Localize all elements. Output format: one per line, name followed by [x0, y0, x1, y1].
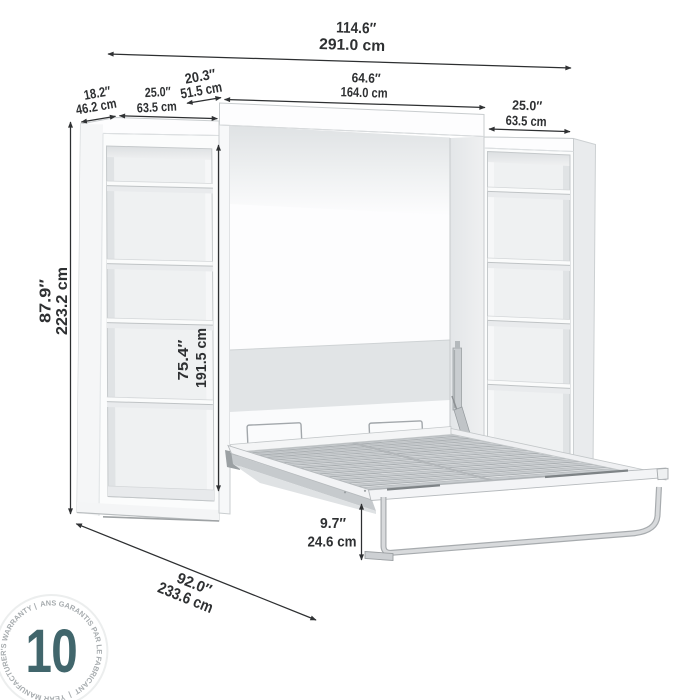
svg-text:64.6″: 64.6″ — [351, 70, 381, 86]
svg-text:24.6 cm: 24.6 cm — [308, 535, 357, 551]
svg-text:114.6″: 114.6″ — [336, 19, 377, 37]
svg-text:25.0″: 25.0″ — [144, 84, 171, 100]
svg-text:25.0″: 25.0″ — [512, 97, 543, 113]
svg-text:75.4″: 75.4″ — [175, 340, 192, 381]
svg-text:223.2 cm: 223.2 cm — [54, 267, 71, 335]
svg-text:291.0 cm: 291.0 cm — [319, 36, 385, 55]
svg-text:63.5 cm: 63.5 cm — [505, 113, 547, 129]
svg-text:63.5 cm: 63.5 cm — [136, 98, 177, 115]
svg-text:9.7″: 9.7″ — [320, 515, 346, 532]
svg-text:191.5 cm: 191.5 cm — [193, 328, 210, 388]
svg-text:10: 10 — [26, 616, 77, 685]
svg-text:87.9″: 87.9″ — [38, 278, 55, 323]
svg-text:164.0 cm: 164.0 cm — [340, 84, 387, 100]
